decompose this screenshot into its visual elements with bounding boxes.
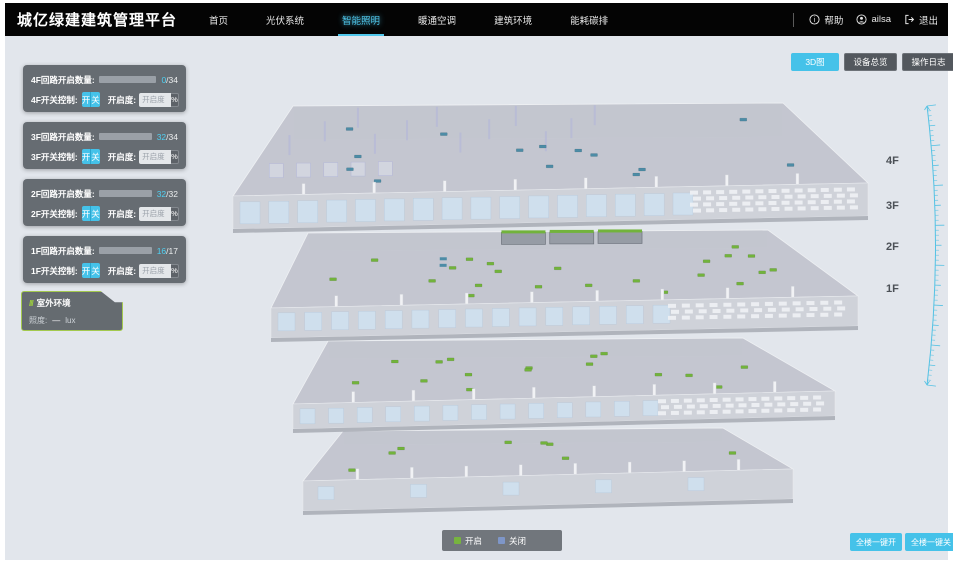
circuit-count-value: 32/32 — [157, 189, 178, 199]
switch-off-button[interactable]: 关 — [91, 206, 100, 221]
nav-item-hvac[interactable]: 暖通空调 — [414, 4, 460, 36]
user-icon — [856, 14, 867, 25]
switch-on-button[interactable]: 开 — [82, 92, 92, 107]
floor-panel-2f: 2F回路开启数量: 32/32 2F开关控制: 开 关 开启度: % — [23, 179, 186, 226]
floor-label-4f[interactable]: 4F — [886, 155, 910, 167]
switch-on-button[interactable]: 开 — [82, 206, 92, 221]
operation-log-button[interactable]: 操作日志 — [902, 53, 953, 71]
circuit-count-label: 1F回路开启数量: — [31, 245, 95, 257]
nav-item-building-env[interactable]: 建筑环境 — [490, 4, 536, 36]
user-name: ailsa — [871, 14, 891, 25]
logout-button[interactable]: 退出 — [904, 13, 938, 27]
illuminance-label: 照度: — [29, 315, 47, 326]
dim-level-input[interactable] — [139, 93, 171, 107]
illuminance-row: 照度: — lux — [29, 315, 115, 326]
light-status-legend: 开启 关闭 — [442, 530, 562, 551]
switch-on-button[interactable]: 开 — [82, 263, 92, 278]
off-swatch — [498, 537, 505, 544]
dim-percent-button[interactable]: % — [171, 150, 179, 164]
top-navigation-bar: 城亿绿建建筑管理平台 首页 光伏系统 智能照明 暖通空调 建筑环境 能耗碳排 i… — [5, 3, 948, 36]
app-window: 城亿绿建建筑管理平台 首页 光伏系统 智能照明 暖通空调 建筑环境 能耗碳排 i… — [0, 0, 953, 564]
slashes-icon: /// — [29, 299, 33, 308]
dim-percent-button[interactable]: % — [171, 207, 179, 221]
circuit-progress-bar — [99, 133, 152, 140]
user-menu[interactable]: ailsa — [856, 14, 891, 25]
switch-off-button[interactable]: 关 — [91, 263, 100, 278]
circuit-count-value: 0/34 — [161, 75, 178, 85]
dim-level-label: 开启度: — [108, 208, 136, 220]
on-swatch — [454, 537, 461, 544]
nav-item-home[interactable]: 首页 — [205, 4, 232, 36]
main-nav: 首页 光伏系统 智能照明 暖通空调 建筑环境 能耗碳排 — [205, 3, 612, 36]
switch-control-label: 3F开关控制: — [31, 151, 78, 163]
dim-percent-button[interactable]: % — [171, 93, 179, 107]
circuit-count-label: 4F回路开启数量: — [31, 74, 95, 86]
help-button[interactable]: i 帮助 — [809, 13, 843, 27]
circuit-count-label: 2F回路开启数量: — [31, 188, 95, 200]
all-floors-off-button[interactable]: 全楼一键关 — [905, 533, 953, 551]
svg-text:i: i — [814, 17, 816, 24]
floor-panel-3f: 3F回路开启数量: 32/34 3F开关控制: 开 关 开启度: % — [23, 122, 186, 169]
illuminance-unit: lux — [65, 316, 75, 325]
floor-label-2f[interactable]: 2F — [886, 241, 910, 253]
floor-panel-4f: 4F回路开启数量: 0/34 4F开关控制: 开 关 开启度: % — [23, 65, 186, 112]
help-icon: i — [809, 14, 820, 25]
switch-control-label: 1F开关控制: — [31, 265, 78, 277]
dim-level-input[interactable] — [139, 207, 171, 221]
device-overview-button[interactable]: 设备总览 — [844, 53, 897, 71]
dim-level-input[interactable] — [139, 264, 171, 278]
circuit-count-value: 16/17 — [157, 246, 178, 256]
circuit-count-label: 3F回路开启数量: — [31, 131, 95, 143]
circuit-progress-bar — [99, 76, 157, 83]
legend-off: 关闭 — [498, 535, 526, 547]
switch-off-button[interactable]: 关 — [91, 92, 100, 107]
legend-off-label: 关闭 — [509, 535, 526, 547]
dim-level-label: 开启度: — [108, 94, 136, 106]
outdoor-env-panel: /// 室外环境 照度: — lux — [21, 291, 123, 331]
dim-level-label: 开启度: — [108, 265, 136, 277]
switch-on-button[interactable]: 开 — [82, 149, 92, 164]
all-floors-on-button[interactable]: 全楼一键开 — [850, 533, 902, 551]
nav-item-smart-lighting[interactable]: 智能照明 — [338, 4, 384, 36]
floor-label-3f[interactable]: 3F — [886, 200, 910, 212]
illuminance-value: — — [52, 316, 60, 325]
main-stage: 城亿绿建建筑管理平台 首页 光伏系统 智能照明 暖通空调 建筑环境 能耗碳排 i… — [5, 3, 948, 560]
help-label: 帮助 — [824, 13, 843, 27]
floor-label-1f[interactable]: 1F — [886, 283, 910, 295]
logout-icon — [904, 14, 915, 25]
circuit-progress-bar — [99, 190, 152, 197]
nav-item-energy-carbon[interactable]: 能耗碳排 — [566, 4, 612, 36]
view-3d-button[interactable]: 3D图 — [791, 53, 839, 71]
app-title: 城亿绿建建筑管理平台 — [17, 9, 177, 30]
dim-level-label: 开启度: — [108, 151, 136, 163]
legend-on-label: 开启 — [465, 535, 482, 547]
nav-item-pv-system[interactable]: 光伏系统 — [262, 4, 308, 36]
building-3d-model[interactable] — [228, 96, 888, 524]
dim-percent-button[interactable]: % — [171, 264, 179, 278]
circuit-progress-bar — [99, 247, 152, 254]
legend-on: 开启 — [454, 535, 482, 547]
switch-off-button[interactable]: 关 — [91, 149, 100, 164]
dim-level-input[interactable] — [139, 150, 171, 164]
switch-control-label: 4F开关控制: — [31, 94, 78, 106]
floor-panel-1f: 1F回路开启数量: 16/17 1F开关控制: 开 关 开启度: % — [23, 236, 186, 283]
floor-ruler[interactable] — [918, 101, 953, 393]
logout-label: 退出 — [919, 13, 938, 27]
divider — [793, 13, 794, 27]
outdoor-env-title: /// 室外环境 — [29, 297, 115, 309]
circuit-count-value: 32/34 — [157, 132, 178, 142]
topbar-right: i 帮助 ailsa 退出 — [793, 3, 938, 36]
switch-control-label: 2F开关控制: — [31, 208, 78, 220]
